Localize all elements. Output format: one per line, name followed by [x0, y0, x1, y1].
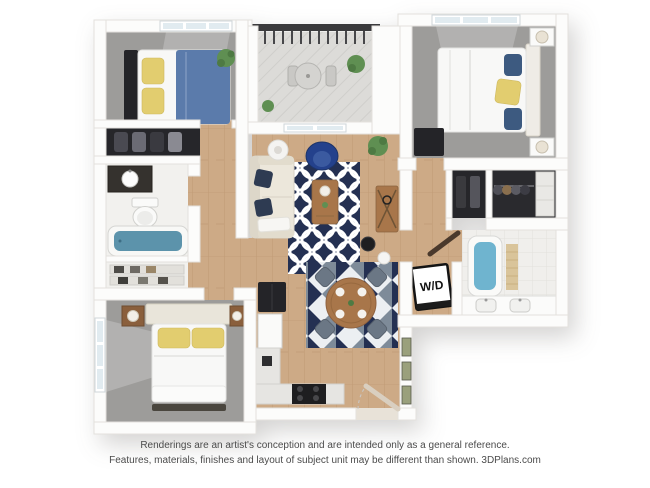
- bed-3: [146, 304, 232, 411]
- accent-armchair: [306, 142, 338, 170]
- bathtub-2: [468, 236, 502, 296]
- plant-living: [368, 136, 388, 156]
- wall-art-dining: [402, 338, 411, 404]
- round-side-table-dark: [361, 237, 375, 251]
- coffee-table: [312, 180, 338, 224]
- disclaimer: Renderings are an artist's conception an…: [0, 438, 650, 468]
- balcony-table-set: [288, 63, 336, 89]
- bathtub-1: [108, 226, 188, 256]
- nightstand-bed2-top: [530, 28, 554, 46]
- disclaimer-line-2: Features, materials, finishes and layout…: [0, 453, 650, 468]
- floor-plan-page: W/D: [0, 0, 650, 488]
- vanity-bath2: [462, 296, 556, 315]
- nightstand-bed3-left: [122, 306, 144, 326]
- washer-dryer: W/D: [411, 264, 452, 310]
- bed3-bench: [152, 404, 226, 411]
- bed-1: [124, 50, 230, 124]
- disclaimer-line-1: Renderings are an artist's conception an…: [0, 438, 650, 453]
- balcony-door: [284, 124, 346, 132]
- window-bedroom1: [160, 21, 232, 31]
- nightstand-bed2-bottom: [530, 138, 554, 156]
- window-bedroom3: [95, 318, 105, 392]
- bath-mat: [506, 244, 518, 290]
- tall-cabinet: [258, 314, 282, 348]
- nightstand-bed3-right: [230, 306, 244, 326]
- sink-bath1: [122, 171, 138, 187]
- plant-bedroom1: [217, 49, 235, 67]
- toilet: [132, 198, 158, 228]
- console-desk: [376, 186, 398, 232]
- stove: [292, 384, 326, 404]
- entry-threshold: [356, 408, 398, 420]
- washer-dryer-label: W/D: [419, 278, 444, 295]
- side-table-lamp: [268, 140, 288, 160]
- floor-lamp-globe: [378, 252, 390, 264]
- coffee-maker: [262, 356, 272, 366]
- window-bedroom2: [432, 15, 520, 25]
- dresser-bedroom2: [414, 128, 444, 156]
- bed-2: [438, 44, 540, 136]
- sofa: [250, 156, 294, 238]
- floor-plan-rendering: W/D: [0, 0, 650, 436]
